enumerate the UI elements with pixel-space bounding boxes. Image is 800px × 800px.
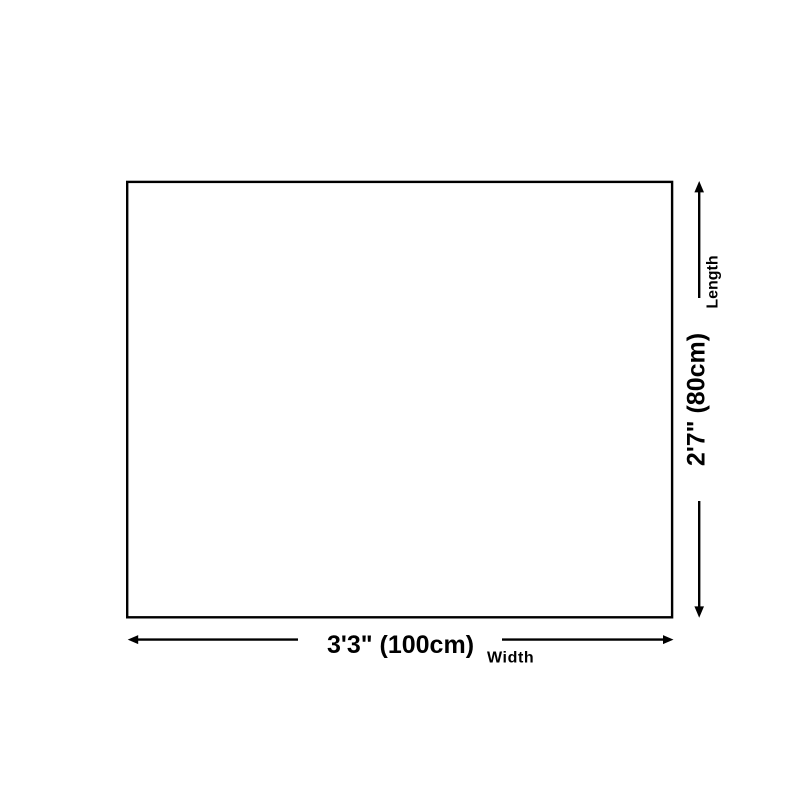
svg-text:2'7" (80cm): 2'7" (80cm) — [683, 333, 711, 466]
svg-text:Length: Length — [705, 255, 722, 308]
svg-text:Width: Width — [487, 650, 534, 667]
svg-text:3'3" (100cm): 3'3" (100cm) — [327, 631, 474, 659]
